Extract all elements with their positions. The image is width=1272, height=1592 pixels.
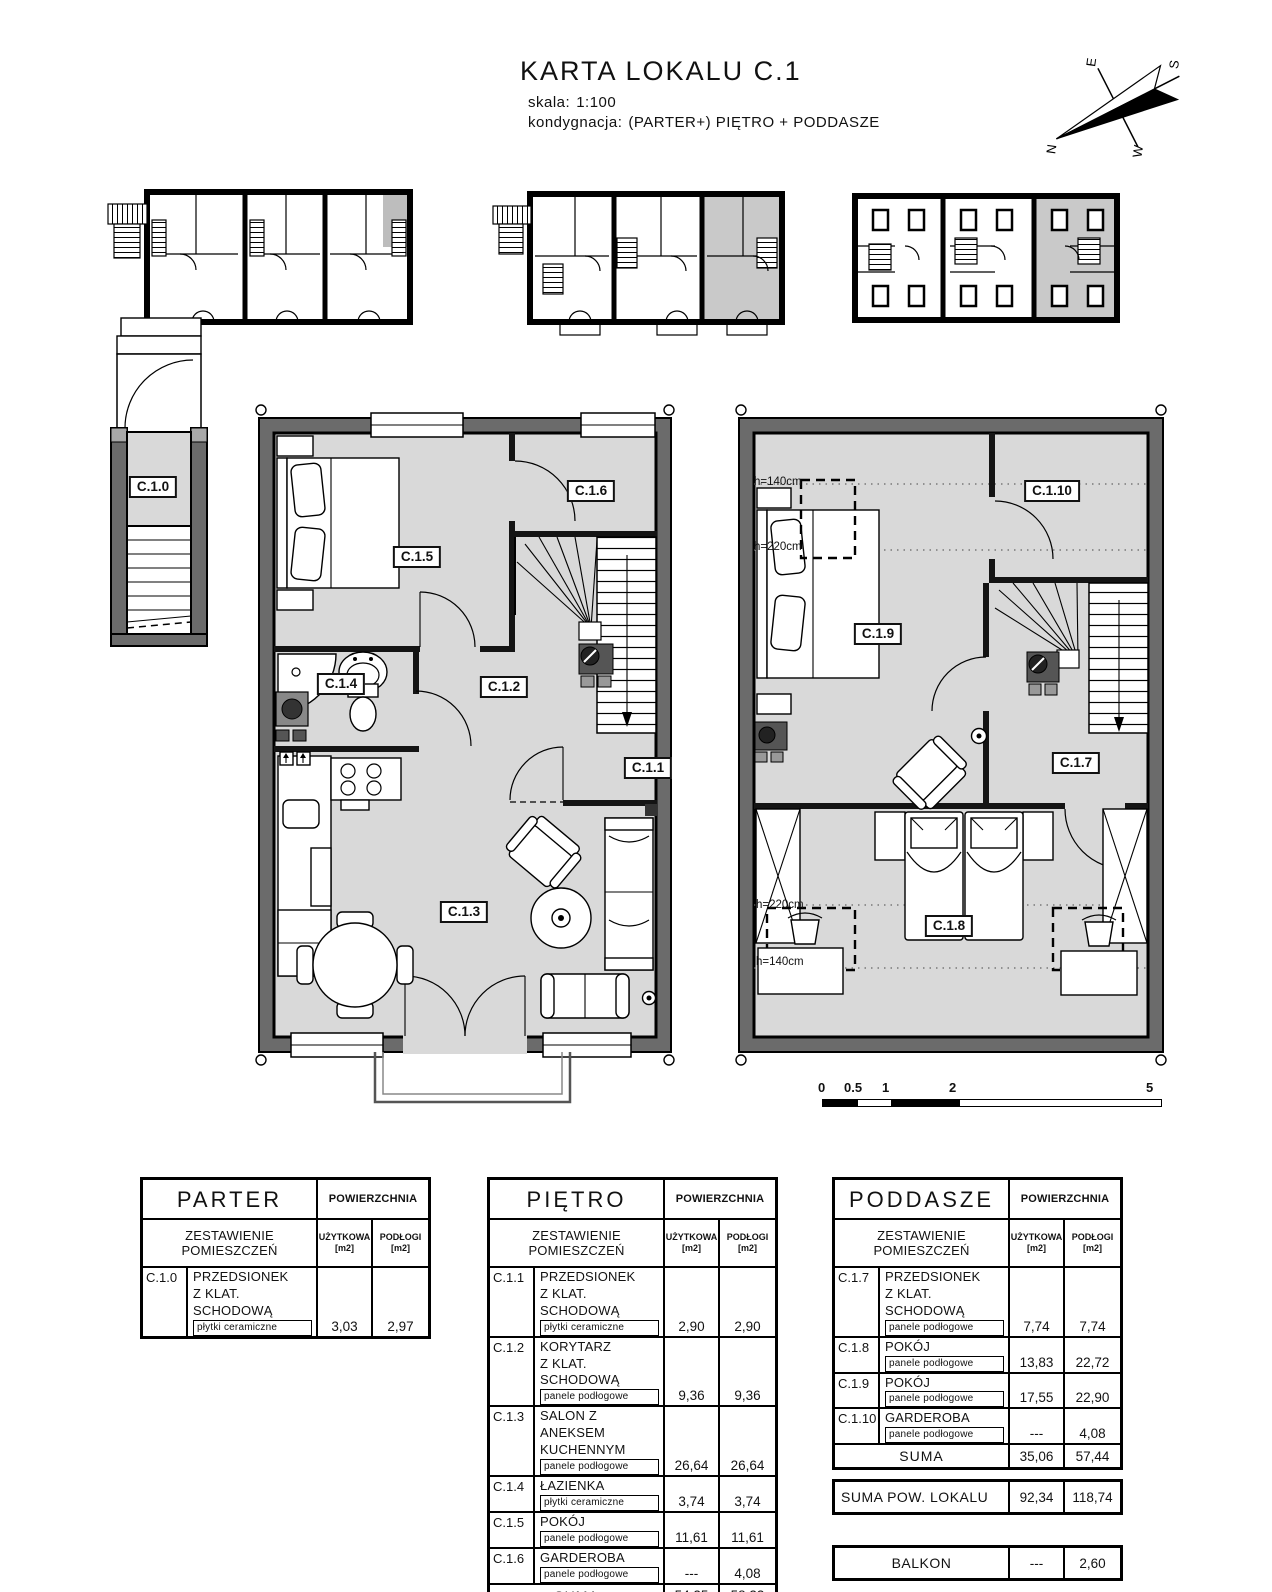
plan-poddasze [733,400,1169,1070]
table-title: PARTER [143,1180,316,1218]
room-name: GARDEROBApanele podłogowe [878,1409,1008,1443]
loveseat [541,974,629,1018]
table-subheader-row: ZESTAWIENIE POMIESZCZEŃUŻYTKOWA[m2]PODŁO… [835,1218,1120,1266]
room-name-line: Z KLAT. SCHODOWĄ [885,1286,1008,1320]
room-code: C.1.1 [490,1268,533,1336]
table-header-row: PODDASZEPOWIERZCHNIA [835,1180,1120,1218]
scale-bar: 0 0.5 1 2 5 m [822,1080,1167,1116]
room-finish: panele podłogowe [885,1391,1004,1407]
summary-total-label: SUMA POW. LOKALU [835,1482,1008,1512]
compass-n: N [1043,143,1059,154]
room-name: PRZEDSIONEKZ KLAT. SCHODOWĄpłytki cerami… [533,1268,663,1336]
room-name-line: SALON Z ANEKSEM [540,1408,663,1442]
room-name-line: Z KLAT. SCHODOWĄ [540,1286,663,1320]
scale-segment [858,1100,892,1106]
room-finish: panele podłogowe [540,1531,659,1547]
floor-outlet [643,992,656,1005]
room-area-uzytkowa: 17,55 [1008,1374,1063,1408]
col-unit: [m2] [738,1243,757,1254]
scale-bar-segments [822,1099,1162,1107]
scale-tick: 0.5 [844,1080,862,1095]
height-annotation: h=220cm [754,541,802,553]
room-area-uzytkowa: 3,03 [316,1268,371,1336]
room-area-podlogi: 4,08 [718,1549,775,1583]
col-label: PODŁOGI [380,1232,422,1243]
scale-line: skala:1:100 [528,94,622,111]
room-name-line: POKÓJ [885,1375,1008,1392]
compass-icon: N S E W [1035,48,1200,168]
summary-total-row: SUMA POW. LOKALU 92,34 118,74 [832,1479,1123,1515]
plan-pietro [253,400,677,1110]
room-code: C.1.0 [143,1268,186,1336]
suma-row: SUMA54,2558,33 [490,1583,775,1592]
room-name: KORYTARZZ KLAT. SCHODOWĄpanele podłogowe [533,1338,663,1406]
room-name-line: Z KLAT. SCHODOWĄ [193,1286,316,1320]
room-area-uzytkowa: 7,74 [1008,1268,1063,1336]
room-finish: panele podłogowe [540,1389,659,1405]
room-area-podlogi: 3,74 [718,1477,775,1511]
room-label-c11: C.1.1 [624,757,672,779]
height-annotation: h=220cm [756,899,804,911]
suma-podlogi: 57,44 [1063,1445,1120,1467]
table-row: C.1.0PRZEDSIONEKZ KLAT. SCHODOWĄpłytki c… [143,1266,428,1336]
electrical-box [755,722,787,762]
overview-plan-poddasze [835,182,1145,337]
suma-row: SUMA35,0657,44 [835,1443,1120,1467]
room-name: PRZEDSIONEKZ KLAT. SCHODOWĄpłytki cerami… [186,1268,316,1336]
scale-tick: 0 [818,1080,825,1095]
height-annotation: h=140cm [754,476,802,488]
col-label: UŻYTKOWA [666,1232,718,1243]
table-row: C.1.2KORYTARZZ KLAT. SCHODOWĄpanele podł… [490,1336,775,1406]
room-area-podlogi: 11,61 [718,1513,775,1547]
room-area-uzytkowa: 26,64 [663,1407,718,1475]
room-code: C.1.10 [835,1409,878,1443]
suma-uzytkowa: 54,25 [663,1585,718,1592]
col-header-uzytkowa: UŻYTKOWA[m2] [663,1220,718,1266]
room-finish: panele podłogowe [540,1567,659,1583]
room-code: C.1.9 [835,1374,878,1408]
compass-w: W [1129,143,1146,158]
table-row: C.1.10GARDEROBApanele podłogowe---4,08 [835,1407,1120,1443]
room-name: POKÓJpanele podłogowe [533,1513,663,1547]
coffee-table [531,888,591,948]
scale-segment [960,1100,1161,1106]
room-name-line: PRZEDSIONEK [540,1269,663,1286]
scale-tick: 2 [949,1080,956,1095]
room-name: GARDEROBApanele podłogowe [533,1549,663,1583]
balkon-podlogi: 2,60 [1063,1548,1120,1578]
room-code: C.1.5 [490,1513,533,1547]
col-unit: [m2] [391,1243,410,1254]
table-pietro: PIĘTROPOWIERZCHNIAZESTAWIENIE POMIESZCZE… [487,1177,778,1592]
room-name: POKÓJpanele podłogowe [878,1338,1008,1372]
summary-total-uzytkowa: 92,34 [1008,1482,1063,1512]
room-name: SALON Z ANEKSEMKUCHENNYMpanele podłogowe [533,1407,663,1475]
room-name: PRZEDSIONEKZ KLAT. SCHODOWĄpanele podłog… [878,1268,1008,1336]
floor-lamp [972,729,987,744]
balcony [375,1052,570,1102]
room-label-c19: C.1.9 [854,623,902,645]
table-row: C.1.7PRZEDSIONEKZ KLAT. SCHODOWĄpanele p… [835,1266,1120,1336]
room-area-podlogi: 7,74 [1063,1268,1120,1336]
scale-value: 1:100 [576,94,616,111]
room-label-c14: C.1.4 [317,673,365,695]
room-area-uzytkowa: 9,36 [663,1338,718,1406]
balkon-label: BALKON [835,1548,1008,1578]
table-header-row: PARTERPOWIERZCHNIA [143,1180,428,1218]
room-area-podlogi: 9,36 [718,1338,775,1406]
room-area-uzytkowa: 2,90 [663,1268,718,1336]
room-label-c12: C.1.2 [480,676,528,698]
room-code: C.1.4 [490,1477,533,1511]
room-area-podlogi: 22,72 [1063,1338,1120,1372]
room-name-line: KUCHENNYM [540,1442,663,1459]
suma-label: SUMA [835,1445,1008,1467]
col-label: UŻYTKOWA [319,1232,371,1243]
room-label-c18: C.1.8 [925,915,973,937]
balkon-row: BALKON --- 2,60 [832,1545,1123,1581]
room-code: C.1.7 [835,1268,878,1336]
table-title: PODDASZE [835,1180,1008,1218]
col-unit: [m2] [682,1243,701,1254]
table-row: C.1.1PRZEDSIONEKZ KLAT. SCHODOWĄpłytki c… [490,1266,775,1336]
col-header-uzytkowa: UŻYTKOWA[m2] [1008,1220,1063,1266]
room-finish: panele podłogowe [885,1427,1004,1443]
col-unit: [m2] [335,1243,354,1254]
col-header-podlogi: PODŁOGI[m2] [371,1220,428,1266]
room-finish: płytki ceramiczne [193,1320,312,1336]
overview-plan-pietro [465,180,800,345]
col-header-uzytkowa: UŻYTKOWA[m2] [316,1220,371,1266]
room-label-c16: C.1.6 [567,480,615,502]
room-code: C.1.6 [490,1549,533,1583]
room-name-line: ŁAZIENKA [540,1478,663,1495]
suma-podlogi: 58,33 [718,1585,775,1592]
compass-s: S [1166,59,1182,70]
scale-label: skala: [528,94,570,111]
col-label: UŻYTKOWA [1011,1232,1063,1243]
karta-lokalu-sheet: KARTA LOKALU C.1 skala:1:100 kondygnacja… [0,0,1272,1592]
room-area-uzytkowa: 13,83 [1008,1338,1063,1372]
room-name-line: POKÓJ [885,1339,1008,1356]
col-unit: [m2] [1083,1243,1102,1254]
room-area-podlogi: 4,08 [1063,1409,1120,1443]
table-row: C.1.4ŁAZIENKApłytki ceramiczne3,743,74 [490,1475,775,1511]
room-name-line: PRZEDSIONEK [885,1269,1008,1286]
compass-e: E [1083,57,1099,68]
double-bed [277,436,399,610]
room-area-uzytkowa: 3,74 [663,1477,718,1511]
table-subheader-row: ZESTAWIENIE POMIESZCZEŃUŻYTKOWA[m2]PODŁO… [143,1218,428,1266]
height-annotation: h=140cm [756,956,804,968]
room-name-line: GARDEROBA [885,1410,1008,1427]
area-header: POWIERZCHNIA [663,1180,775,1218]
room-area-uzytkowa: --- [663,1549,718,1583]
scale-tick: 1 [882,1080,889,1095]
room-code: C.1.3 [490,1407,533,1475]
suma-label: SUMA [490,1585,663,1592]
storey-label: kondygnacja: [528,114,622,131]
col-header-podlogi: PODŁOGI[m2] [718,1220,775,1266]
col-label: PODŁOGI [1072,1232,1114,1243]
table-parter: PARTERPOWIERZCHNIAZESTAWIENIE POMIESZCZE… [140,1177,431,1339]
list-header: ZESTAWIENIE POMIESZCZEŃ [490,1220,663,1266]
room-name: ŁAZIENKApłytki ceramiczne [533,1477,663,1511]
scale-segment [823,1100,858,1106]
room-label-c13: C.1.3 [440,901,488,923]
scale-segment [892,1100,960,1106]
col-label: PODŁOGI [727,1232,769,1243]
room-name-line: GARDEROBA [540,1550,663,1567]
room-name: POKÓJpanele podłogowe [878,1374,1008,1408]
storey-value: (PARTER+) PIĘTRO + PODDASZE [628,114,879,131]
room-finish: płytki ceramiczne [540,1320,659,1336]
room-finish: panele podłogowe [540,1459,659,1475]
area-header: POWIERZCHNIA [316,1180,428,1218]
table-poddasze: PODDASZEPOWIERZCHNIAZESTAWIENIE POMIESZC… [832,1177,1123,1470]
room-name-line: KORYTARZ [540,1339,663,1356]
table-row: C.1.9POKÓJpanele podłogowe17,5522,90 [835,1372,1120,1408]
table-title: PIĘTRO [490,1180,663,1218]
table-subheader-row: ZESTAWIENIE POMIESZCZEŃUŻYTKOWA[m2]PODŁO… [490,1218,775,1266]
room-finish: płytki ceramiczne [540,1495,659,1511]
room-area-podlogi: 26,64 [718,1407,775,1475]
list-header: ZESTAWIENIE POMIESZCZEŃ [143,1220,316,1266]
room-code: C.1.8 [835,1338,878,1372]
room-label-c15: C.1.5 [393,546,441,568]
room-name-line: Z KLAT. SCHODOWĄ [540,1356,663,1390]
room-code: C.1.2 [490,1338,533,1406]
room-finish: panele podłogowe [885,1356,1004,1372]
room-area-podlogi: 2,90 [718,1268,775,1336]
balkon-uzytkowa: --- [1008,1548,1063,1578]
page-title: KARTA LOKALU C.1 [520,56,802,87]
table-row: C.1.5POKÓJpanele podłogowe11,6111,61 [490,1511,775,1547]
summary-total-podlogi: 118,74 [1063,1482,1120,1512]
table-header-row: PIĘTROPOWIERZCHNIA [490,1180,775,1218]
room-area-podlogi: 22,90 [1063,1374,1120,1408]
room-label-c10: C.1.0 [129,476,177,498]
suma-uzytkowa: 35,06 [1008,1445,1063,1467]
table-row: C.1.6GARDEROBApanele podłogowe---4,08 [490,1547,775,1583]
storey-line: kondygnacja:(PARTER+) PIĘTRO + PODDASZE [528,114,886,131]
table-row: C.1.3SALON Z ANEKSEMKUCHENNYMpanele podł… [490,1405,775,1475]
room-label-c110: C.1.10 [1024,480,1080,502]
col-header-podlogi: PODŁOGI[m2] [1063,1220,1120,1266]
table-row: C.1.8POKÓJpanele podłogowe13,8322,72 [835,1336,1120,1372]
room-area-uzytkowa: --- [1008,1409,1063,1443]
area-header: POWIERZCHNIA [1008,1180,1120,1218]
room-finish: panele podłogowe [885,1320,1004,1336]
room-name-line: PRZEDSIONEK [193,1269,316,1286]
room-area-podlogi: 2,97 [371,1268,428,1336]
room-label-c17: C.1.7 [1052,752,1100,774]
col-unit: [m2] [1027,1243,1046,1254]
room-name-line: POKÓJ [540,1514,663,1531]
sofa [605,818,653,970]
list-header: ZESTAWIENIE POMIESZCZEŃ [835,1220,1008,1266]
room-area-uzytkowa: 11,61 [663,1513,718,1547]
